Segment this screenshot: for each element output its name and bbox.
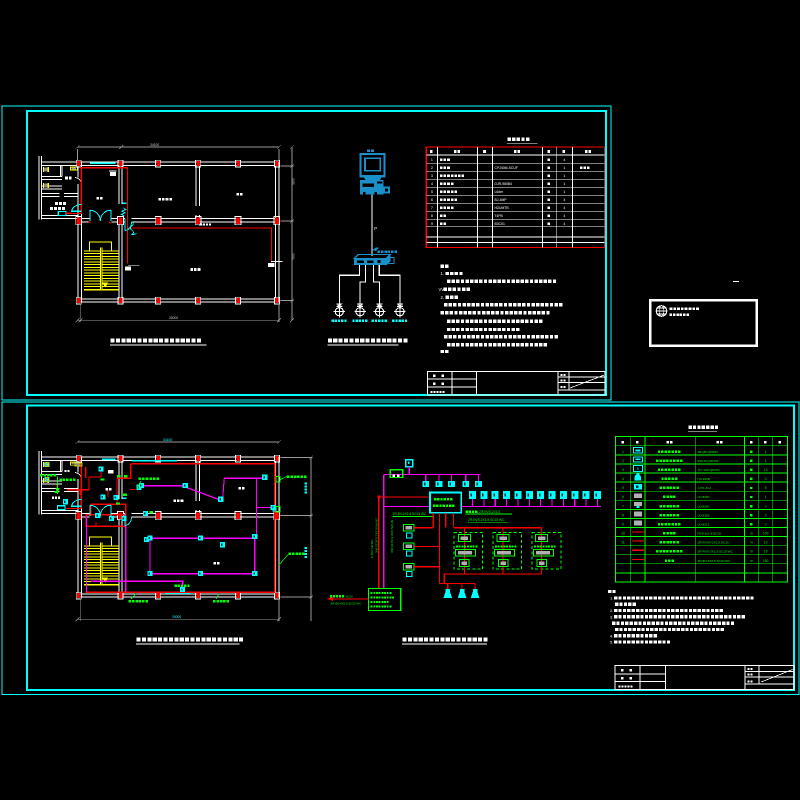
- svg-text:4: 4: [563, 222, 565, 226]
- svg-text:34100: 34100: [163, 438, 172, 442]
- svg-text:NH-BV-2X2.5 SC15 WC: NH-BV-2X2.5 SC15 WC: [390, 520, 394, 554]
- svg-text:4: 4: [431, 182, 433, 186]
- svg-text:4: 4: [563, 158, 565, 162]
- svg-text:6: 6: [431, 198, 433, 202]
- svg-text:P: P: [374, 226, 377, 231]
- svg-text:3: 3: [622, 468, 624, 472]
- svg-text:LD-8313: LD-8313: [698, 522, 710, 526]
- svg-text:1: 1: [563, 190, 565, 194]
- svg-text:3: 3: [765, 522, 767, 526]
- svg-text:ZR-BV-4X2.5 SC20 WC: ZR-BV-4X2.5 SC20 WC: [331, 602, 362, 606]
- svg-text:999-JD-QM70L: 999-JD-QM70L: [698, 459, 719, 463]
- svg-text:1: 1: [765, 495, 767, 499]
- svg-text:1.: 1.: [610, 596, 613, 601]
- svg-text:8: 8: [431, 214, 433, 218]
- svg-text:LD-8301: LD-8301: [698, 504, 710, 508]
- svg-text:10: 10: [764, 541, 768, 545]
- svg-text:1: 1: [563, 182, 565, 186]
- svg-text:150: 150: [763, 559, 769, 563]
- svg-text:2.: 2.: [610, 608, 613, 613]
- svg-text:ZR-RVS-2X1.5: ZR-RVS-2X1.5: [479, 510, 500, 514]
- svg-text:11: 11: [621, 541, 625, 545]
- svg-text:4: 4: [622, 477, 624, 481]
- svg-text:10: 10: [621, 532, 625, 536]
- svg-text:ZR-RVS-2X1.5 SC15 WC: ZR-RVS-2X1.5 SC15 WC: [375, 518, 379, 554]
- svg-text:100: 100: [763, 532, 769, 536]
- svg-text:7800: 7800: [292, 253, 296, 260]
- svg-text:2: 2: [431, 166, 433, 170]
- svg-text:RVS 2x1.5 SC15: RVS 2x1.5 SC15: [698, 532, 722, 536]
- svg-text:m: m: [750, 532, 753, 536]
- svg-text:3: 3: [431, 174, 433, 178]
- svg-text:m: m: [750, 559, 753, 563]
- svg-text:JB-QB-QM200: JB-QB-QM200: [698, 450, 719, 454]
- svg-text:10: 10: [764, 468, 768, 472]
- svg-text:B3C01: B3C01: [495, 222, 505, 226]
- svg-text:74PB: 74PB: [495, 214, 504, 218]
- svg-text:9: 9: [431, 222, 433, 226]
- svg-text:ZR-BV-3X2.5 SC20 WC: ZR-BV-3X2.5 SC20 WC: [698, 559, 732, 563]
- svg-text:m: m: [750, 541, 753, 545]
- svg-text:ZR-RVS-2X1.5 SC15 WC: ZR-RVS-2X1.5 SC15 WC: [698, 550, 734, 554]
- svg-text:JTY-GM-QM701: JTY-GM-QM701: [698, 468, 721, 472]
- svg-text:30000: 30000: [169, 316, 178, 320]
- svg-text:BJ-4MP: BJ-4MP: [495, 198, 508, 202]
- svg-text:CPJ40M-SCUF: CPJ40M-SCUF: [495, 166, 518, 170]
- svg-text:1: 1: [563, 166, 565, 170]
- svg-text:4.: 4.: [610, 633, 613, 638]
- svg-text:ZR-BV-2X1.5 SC15 WC: ZR-BV-2X1.5 SC15 WC: [393, 512, 428, 516]
- svg-text::: :: [448, 264, 449, 269]
- svg-text:4: 4: [563, 214, 565, 218]
- svg-text:34100: 34100: [150, 143, 159, 147]
- svg-text:1: 1: [622, 450, 624, 454]
- svg-text:4: 4: [563, 206, 565, 210]
- svg-text:1: 1: [431, 158, 433, 162]
- svg-text:HX-100B: HX-100B: [698, 477, 711, 481]
- svg-text:7: 7: [431, 206, 433, 210]
- svg-text:ZR-RVSP-2X1.5 SC15: ZR-RVSP-2X1.5 SC15: [698, 541, 730, 545]
- svg-text:9: 9: [622, 522, 624, 526]
- svg-text:HZUMTB: HZUMTB: [495, 206, 510, 210]
- svg-text:SC20: SC20: [346, 594, 354, 598]
- svg-text:DJR-980B4: DJR-980B4: [495, 182, 513, 186]
- svg-text:2.: 2.: [441, 295, 445, 300]
- svg-text:6: 6: [622, 495, 624, 499]
- svg-text:1: 1: [765, 459, 767, 463]
- svg-text:ZR-RVS-2X1.5 SC15 WC: ZR-RVS-2X1.5 SC15 WC: [468, 518, 505, 522]
- svg-text:1: 1: [563, 174, 565, 178]
- svg-text:ZR-BV-2X1.5: ZR-BV-2X1.5: [370, 540, 374, 559]
- svg-text::: :: [615, 589, 616, 594]
- svg-text:30000: 30000: [172, 615, 181, 619]
- svg-text:J-HX-3GJ: J-HX-3GJ: [698, 486, 712, 490]
- svg-text:5.: 5.: [610, 640, 613, 645]
- svg-text:4: 4: [563, 198, 565, 202]
- svg-text:5: 5: [765, 486, 767, 490]
- svg-text:3: 3: [765, 504, 767, 508]
- svg-text:3900: 3900: [292, 178, 296, 185]
- svg-text:5: 5: [431, 190, 433, 194]
- svg-text:1: 1: [765, 450, 767, 454]
- svg-text:8: 8: [622, 513, 624, 517]
- svg-text:3: 3: [765, 477, 767, 481]
- svg-text:7: 7: [622, 504, 624, 508]
- svg-text:3.: 3.: [610, 615, 613, 620]
- svg-text:3: 3: [765, 513, 767, 517]
- svg-text:LD-8305: LD-8305: [698, 513, 710, 517]
- svg-text:10: 10: [764, 550, 768, 554]
- svg-text:1.: 1.: [441, 271, 445, 276]
- svg-text:LD-8300: LD-8300: [698, 495, 710, 499]
- svg-text:m: m: [750, 550, 753, 554]
- svg-text:2: 2: [622, 459, 624, 463]
- svg-text:5: 5: [622, 486, 624, 490]
- svg-text:L6der: L6der: [495, 190, 505, 194]
